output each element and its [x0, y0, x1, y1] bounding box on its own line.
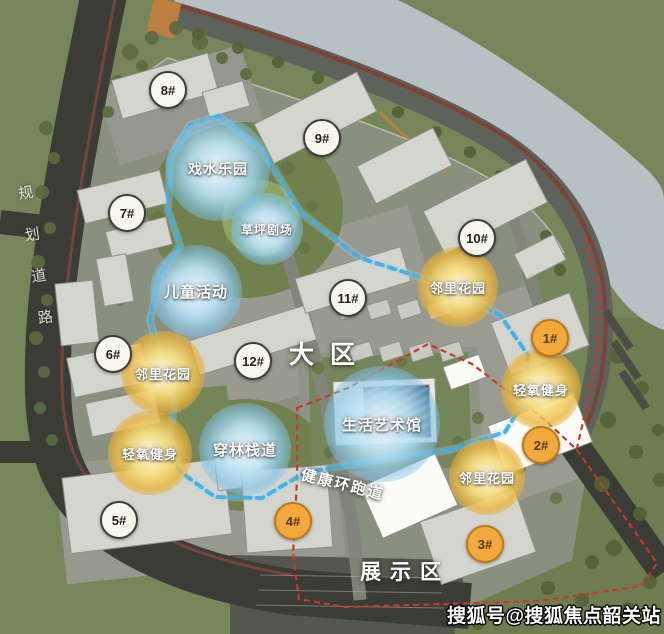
feature-oxygen-fitness-e: 轻氧健身: [501, 349, 581, 429]
feature-children-activity: 儿童活动: [150, 245, 242, 337]
building-marker-10: 10#: [458, 219, 496, 257]
building-marker-1: 1#: [531, 319, 569, 357]
feature-neighbor-garden-ne: 邻里花园: [418, 247, 498, 327]
feature-life-art-museum: 生活艺术馆: [324, 366, 440, 482]
building-marker-8: 8#: [149, 71, 187, 109]
zone-label-main: 大区: [289, 335, 371, 371]
map-base-art: [0, 0, 664, 634]
watermark-sohu: 搜狐号@搜狐焦点韶关站: [447, 601, 661, 628]
building-marker-7: 7#: [108, 194, 146, 232]
zone-label-display: 展示区: [360, 556, 450, 586]
building-marker-11: 11#: [329, 279, 367, 317]
building-marker-6: 6#: [94, 335, 132, 373]
feature-forest-boardwalk: 穿林栈道: [199, 403, 291, 495]
feature-oxygen-fitness-sw: 轻氧健身: [108, 411, 192, 495]
feature-neighbor-garden-se: 邻里花园: [449, 439, 525, 515]
building-marker-3: 3#: [466, 525, 504, 563]
feature-lawn-theater: 草坪剧场: [231, 193, 303, 265]
building-marker-5: 5#: [100, 501, 138, 539]
feature-neighbor-garden-w: 邻里花园: [121, 331, 205, 415]
building-marker-9: 9#: [303, 119, 341, 157]
site-plan-map: 戏水乐园 草坪剧场 儿童活动 邻里花园 轻氧健身 邻里花园 轻氧健身 穿林栈道 …: [0, 0, 664, 634]
building-marker-2: 2#: [522, 426, 560, 464]
building-marker-12: 12#: [234, 342, 272, 380]
building-marker-4: 4#: [274, 502, 312, 540]
